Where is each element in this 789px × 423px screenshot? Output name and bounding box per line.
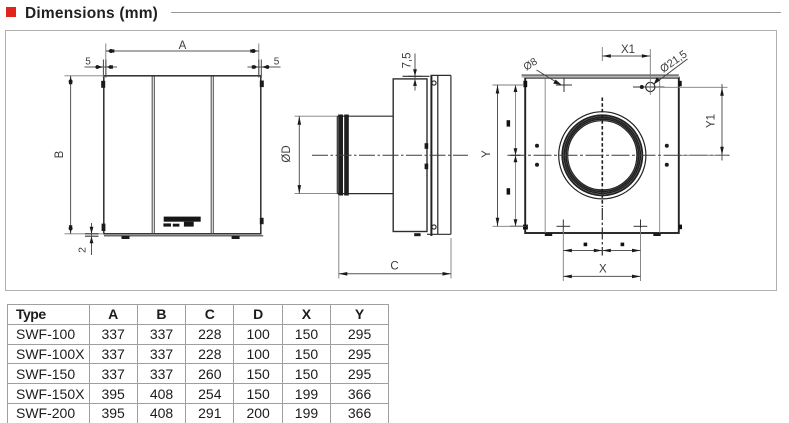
svg-text:B: B	[54, 150, 66, 158]
svg-text:ØD: ØD	[281, 145, 293, 162]
svg-text:X: X	[599, 264, 607, 276]
svg-text:C: C	[390, 261, 398, 273]
svg-text:A: A	[179, 40, 187, 52]
svg-text:2: 2	[77, 247, 89, 253]
svg-text:Y: Y	[481, 150, 493, 158]
svg-text:5: 5	[274, 57, 280, 68]
svg-text:Y1: Y1	[706, 114, 718, 128]
svg-text:5: 5	[85, 57, 91, 68]
svg-text:X1: X1	[621, 44, 635, 56]
svg-text:Ø21,5: Ø21,5	[658, 48, 689, 75]
svg-text:7,5: 7,5	[402, 53, 414, 69]
